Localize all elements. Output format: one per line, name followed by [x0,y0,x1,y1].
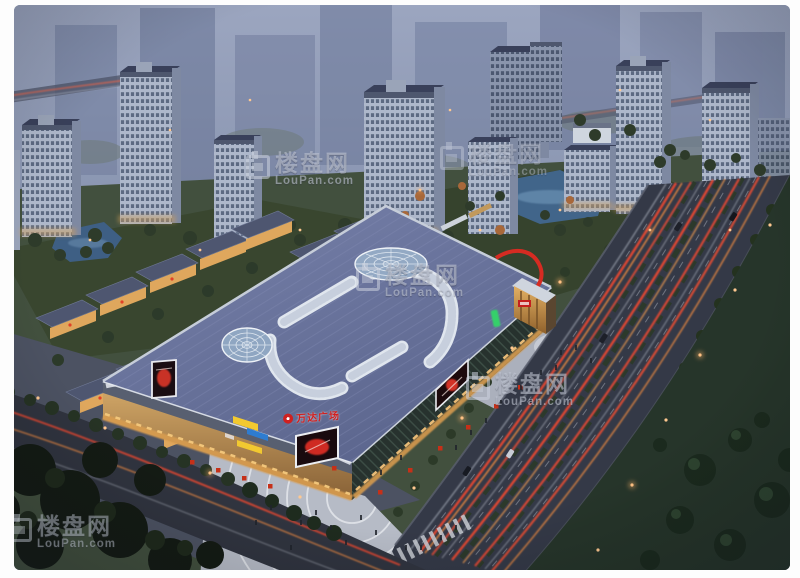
photo-frame: 万达广场 楼盘网 LouPan.com 楼盘网 LouPan.com 楼盘网 L… [0,0,800,578]
mall-sign-text: 万达广场 [296,407,341,425]
photo: 万达广场 楼盘网 LouPan.com 楼盘网 LouPan.com 楼盘网 L… [14,5,790,570]
wanda-logo-icon [283,413,294,424]
world: 万达广场 楼盘网 LouPan.com 楼盘网 LouPan.com 楼盘网 L… [14,5,790,570]
scene-svg [14,5,790,570]
vignette [14,5,790,570]
